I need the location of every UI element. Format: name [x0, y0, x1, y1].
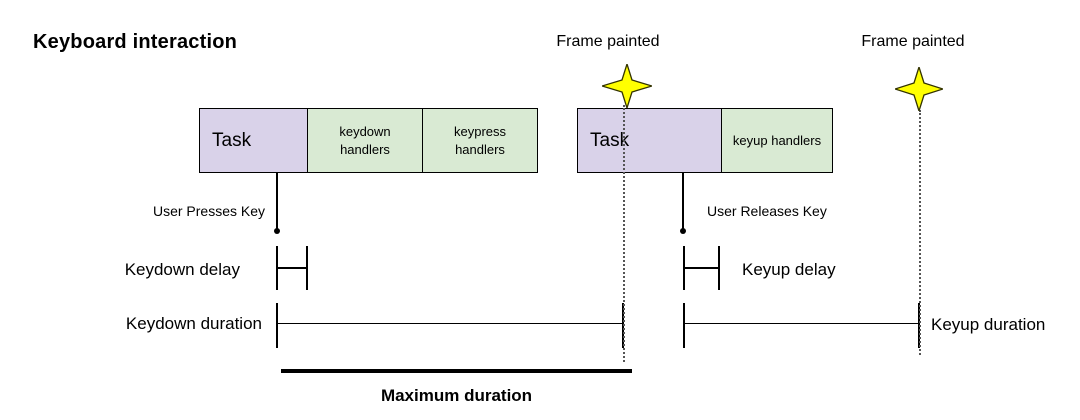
keydown-duration-start-tick — [276, 303, 278, 348]
keydown-handlers-box: keydown handlers — [307, 108, 423, 173]
keyup-handlers-box: keyup handlers — [721, 108, 833, 173]
keyboard-interaction-diagram: Keyboard interaction Frame painted Frame… — [0, 0, 1080, 420]
keydown-handlers-label: keydown handlers — [339, 123, 390, 158]
frame-painted-label-second: Frame painted — [848, 33, 978, 51]
keydown-duration-span-line — [277, 323, 623, 324]
keyup-duration-start-tick — [683, 303, 685, 348]
keydown-event-dot — [274, 228, 280, 234]
frame-painted-label-first: Frame painted — [543, 33, 673, 51]
keyup-delay-label: Keyup delay — [742, 260, 836, 280]
user-presses-key-label: User Presses Key — [115, 203, 265, 220]
task-box-keyup: Task — [577, 108, 722, 173]
frame-painted-projection-line — [919, 110, 921, 355]
keydown-duration-label: Keydown duration — [92, 314, 262, 334]
keypress-handlers-label: keypress handlers — [454, 123, 506, 158]
maximum-duration-line — [281, 369, 632, 373]
keypress-handlers-box: keypress handlers — [422, 108, 538, 173]
keydown-delay-label: Keydown delay — [90, 260, 240, 280]
maximum-duration-label: Maximum duration — [281, 386, 632, 406]
frame-painted-projection-line — [623, 105, 625, 362]
keyup-delay-span-line — [684, 267, 719, 269]
keyup-event-stem-line — [682, 172, 684, 229]
user-releases-key-label: User Releases Key — [707, 203, 827, 220]
keyup-handlers-label: keyup handlers — [733, 132, 821, 150]
task-label: Task — [212, 130, 251, 152]
keyup-duration-span-line — [684, 323, 919, 324]
page-title: Keyboard interaction — [33, 31, 237, 54]
keydown-event-stem-line — [276, 172, 278, 229]
keyup-event-dot — [680, 228, 686, 234]
frame-painted-star-icon — [602, 64, 652, 108]
task-box-keydown: Task — [199, 108, 308, 173]
frame-painted-star-icon — [895, 67, 943, 111]
keyup-duration-label: Keyup duration — [931, 315, 1045, 335]
keydown-delay-span-line — [277, 267, 307, 269]
